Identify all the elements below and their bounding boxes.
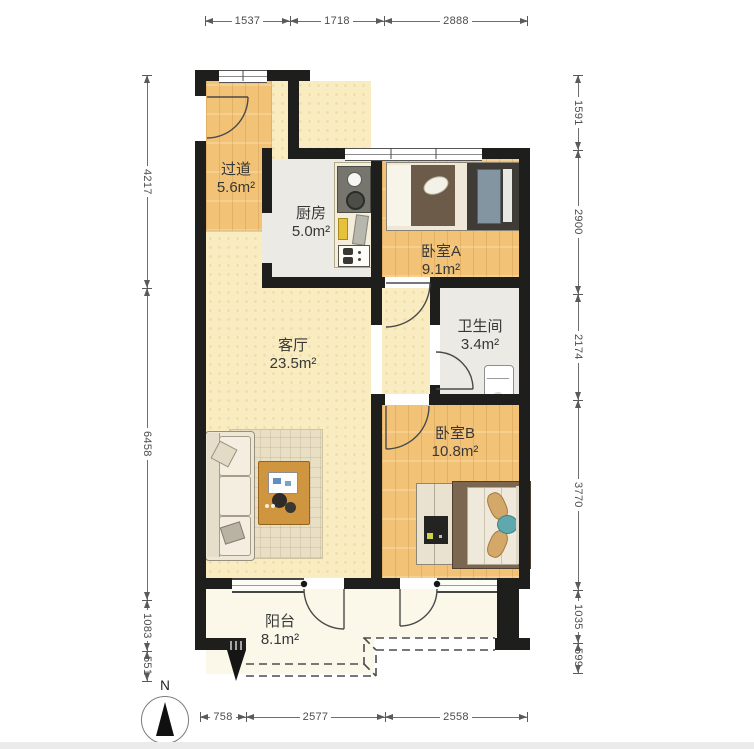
dim-bottom-2577: 2577 [246,711,385,723]
dim-label: 2558 [440,711,472,723]
compass-north-label: N [160,678,170,693]
room-name: 卫生间 [457,318,502,336]
arrow-down-icon [575,582,581,590]
dim-left-1083: 1083 [141,600,153,651]
arrow-up-icon [575,150,581,158]
dim-label: 1591 [572,97,584,129]
page-bottom-strip [0,742,754,749]
room-label-kitchen: 厨房 5.0m² [292,205,330,241]
compass-needle-icon [156,702,174,736]
room-area: 23.5m² [270,355,317,373]
dim-tick [527,712,528,722]
room-area: 10.8m² [432,443,479,461]
dim-tick [142,681,152,682]
arrow-up-icon [575,400,581,408]
balcony-dashed-outer [246,650,495,676]
balcony-dashed-diag [364,638,376,650]
dim-right-3770: 3770 [572,400,584,590]
arrow-up-icon [575,590,581,598]
arrow-left-icon [385,714,393,720]
room-label-living-room: 客厅 23.5m² [270,337,317,373]
arrow-up-icon [144,600,150,608]
arrow-down-icon [144,673,150,681]
dim-tick [246,712,247,722]
room-label-bedroom-a: 卧室A 9.1m² [421,243,461,279]
dim-tick [573,643,583,644]
dim-top-1537: 1537 [205,15,290,27]
arrow-right-icon [377,714,385,720]
dim-tick [142,651,152,652]
arrow-right-icon [376,18,384,24]
arrow-right-icon [282,18,290,24]
room-area: 9.1m² [421,261,461,279]
room-name: 过道 [217,161,255,179]
dim-right-1591: 1591 [572,75,584,150]
balcony-door-2-arc [400,589,437,626]
dim-top-2888: 2888 [384,15,528,27]
dim-right-599: 599 [572,643,584,673]
room-area: 5.0m² [292,223,330,241]
dim-label: 1035 [572,601,584,633]
dim-left-6458: 6458 [141,288,153,600]
arrow-left-icon [290,18,298,24]
arrow-down-icon [575,665,581,673]
dim-right-1035: 1035 [572,590,584,643]
room-name: 卧室A [421,243,461,261]
arrow-up-icon [144,651,150,659]
dim-tick [205,16,206,26]
arrow-down-icon [144,280,150,288]
dim-label: 1083 [141,610,153,642]
dim-tick [573,673,583,674]
dim-tick [573,590,583,591]
dim-left-4217: 4217 [141,75,153,288]
room-label-hallway: 过道 5.6m² [217,161,255,197]
arrow-down-icon [575,635,581,643]
dim-tick [573,75,583,76]
room-area: 5.6m² [217,179,255,197]
dim-right-2174: 2174 [572,294,584,400]
dim-tick [142,288,152,289]
dim-left-551: 551 [141,651,153,681]
room-name: 阳台 [261,613,299,631]
bedroom-a-door-arc [386,283,430,327]
dim-bottom-758: 758 [200,711,246,723]
dim-label: 758 [210,711,235,723]
dim-tick [200,712,201,722]
room-area: 8.1m² [261,631,299,649]
dim-label: 4217 [141,166,153,198]
dim-tick [290,16,291,26]
dim-label: 2577 [300,711,332,723]
dim-tick [385,712,386,722]
arrow-down-icon [144,643,150,651]
arrow-up-icon [144,288,150,296]
annotation-layer [0,0,754,749]
arrow-up-icon [144,75,150,83]
dim-label: 2174 [572,331,584,363]
dim-label: 1718 [321,15,353,27]
dim-label: 2900 [572,206,584,238]
dim-tick [142,75,152,76]
room-area: 3.4m² [457,336,502,354]
room-label-bedroom-b: 卧室B 10.8m² [432,425,479,461]
room-name: 客厅 [270,337,317,355]
bathroom-door-arc [436,352,473,389]
arrow-down-icon [144,592,150,600]
arrow-up-icon [575,643,581,651]
arrow-right-icon [519,714,527,720]
dim-label: 3770 [572,479,584,511]
dim-tick [527,16,528,26]
dim-tick [573,150,583,151]
arrow-left-icon [200,714,208,720]
arrow-right-icon [238,714,246,720]
dim-top-1718: 1718 [290,15,384,27]
dim-tick [573,400,583,401]
room-name: 卧室B [432,425,479,443]
compass: N [141,696,189,744]
room-name: 厨房 [292,205,330,223]
drain-symbol [227,650,246,681]
dim-right-2900: 2900 [572,150,584,294]
room-label-bathroom: 卫生间 3.4m² [457,318,502,354]
arrow-down-icon [575,286,581,294]
dim-label: 2888 [440,15,472,27]
arrow-left-icon [205,18,213,24]
arrow-left-icon [384,18,392,24]
dim-bottom-2558: 2558 [385,711,527,723]
dim-label: 6458 [141,428,153,460]
bedroom-b-door-arc [386,406,429,449]
balcony-door-1-arc [304,589,344,629]
balcony-dashed-diag [364,664,376,676]
arrow-down-icon [575,392,581,400]
dim-tick [384,16,385,26]
dim-tick [142,600,152,601]
arrow-up-icon [575,294,581,302]
floor-plan-canvas: 过道 5.6m² 厨房 5.0m² 卧室A 9.1m² 卫生间 3.4m² 客厅… [0,0,754,749]
arrow-up-icon [575,75,581,83]
room-label-balcony: 阳台 8.1m² [261,613,299,649]
entrance-door-arc [207,97,248,138]
door-hinge-dot [301,581,307,587]
dim-label: 1537 [232,15,264,27]
arrow-left-icon [246,714,254,720]
arrow-down-icon [575,142,581,150]
door-hinge-dot [434,581,440,587]
dim-tick [573,294,583,295]
